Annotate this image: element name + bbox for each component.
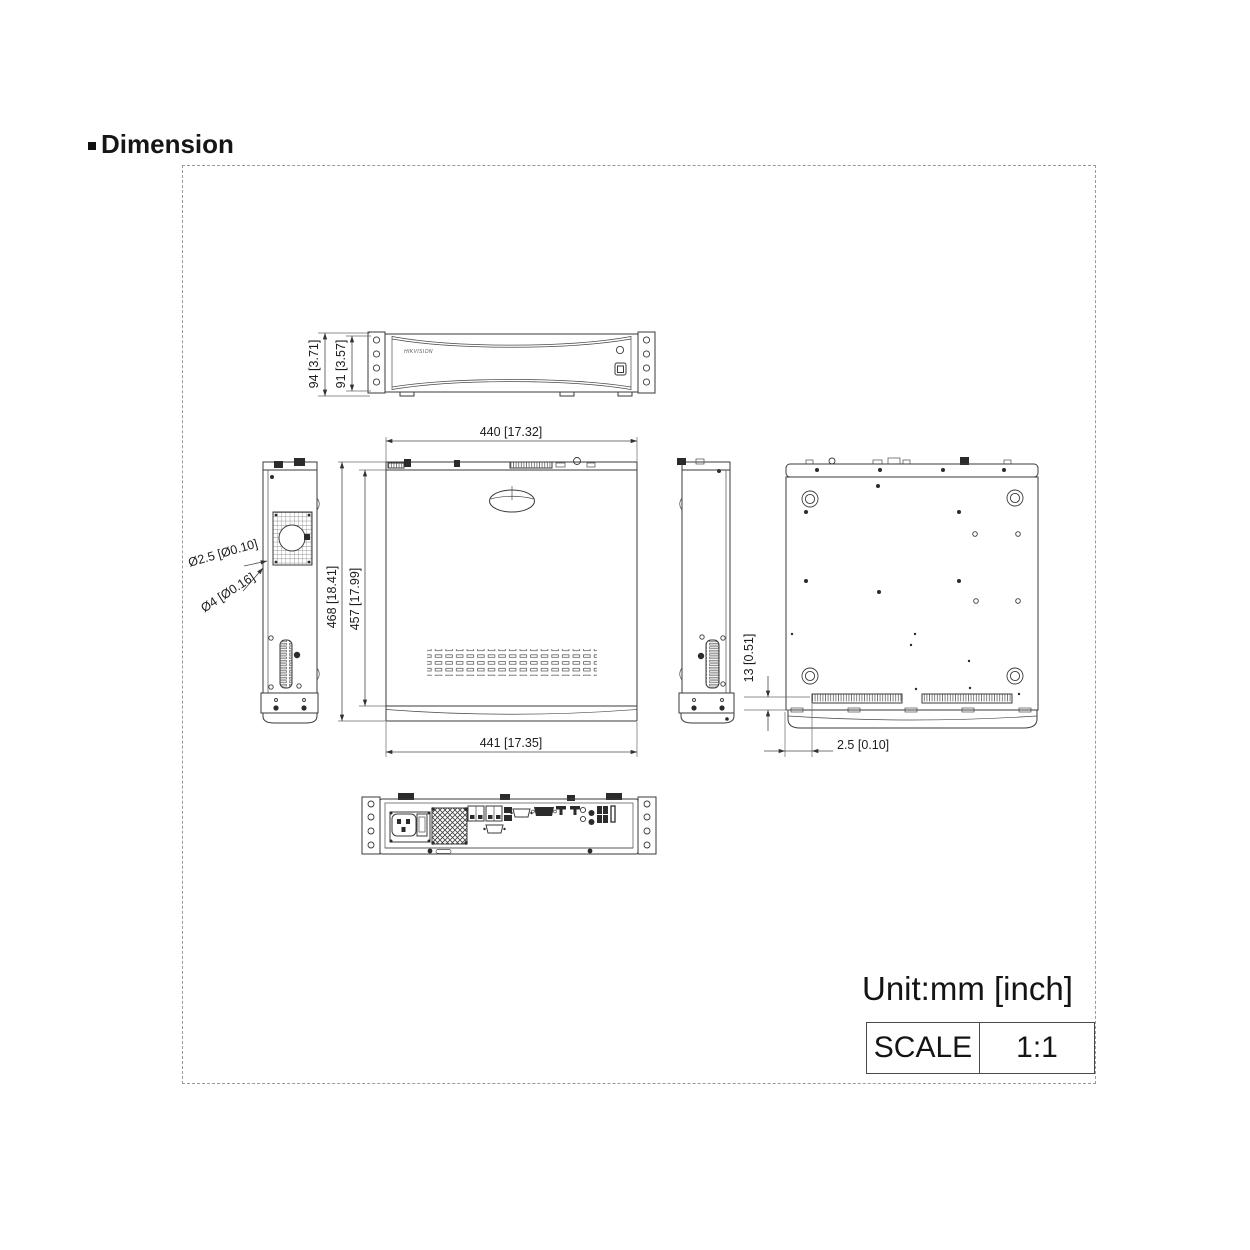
dim-foot-height: 13 [0.51]: [742, 634, 756, 683]
hikvision-logo: HIKVISION: [404, 349, 433, 355]
left-side-view-drawing: [261, 458, 319, 723]
dim-foot-offset: 2.5 [0.10]: [837, 738, 889, 752]
side-connector-slots-right: [706, 640, 719, 688]
front-usb-port: [615, 363, 626, 375]
bottom-feet: [802, 490, 1023, 684]
rear-alarm-terminal-block: [597, 806, 615, 823]
rear-hdmi-ports: [556, 806, 580, 815]
rear-view-drawing: [362, 793, 656, 854]
bottom-vent-strip-left: [812, 694, 902, 703]
rear-audio-jacks: [580, 807, 594, 825]
top-view-dimension-lines: [338, 437, 637, 757]
bottom-view-drawing: [786, 457, 1038, 728]
rear-vga-port: [510, 809, 532, 817]
scale-value: 1:1: [980, 1023, 1094, 1073]
rear-vent-grille: [431, 807, 467, 844]
dim-top-width: 440 [17.32]: [480, 425, 543, 439]
right-side-view-drawing: [677, 458, 734, 723]
front-power-button: [616, 346, 623, 353]
rear-serial-port: [532, 807, 557, 816]
top-view-drawing: [386, 458, 637, 722]
top-vent-slots: [427, 649, 597, 676]
rear-network-ports: [468, 806, 502, 821]
scale-label: SCALE: [867, 1023, 980, 1073]
dim-bottom-width: 441 [17.35]: [480, 736, 543, 750]
dim-depth-inner: 457 [17.99]: [348, 568, 362, 631]
bottom-vent-strip-right: [922, 694, 1012, 703]
dimension-drawing-page: Dimension: [0, 0, 1250, 1250]
dim-front-height-outer: 94 [3.71]: [307, 340, 321, 389]
dim-screw-hole-large: Ø4 [Ø0.16]: [198, 570, 257, 615]
side-connector-slots: [280, 640, 292, 688]
top-dome-detail: [490, 486, 535, 512]
rear-vga-port-lower: [483, 825, 505, 833]
scale-table: SCALE 1:1: [866, 1022, 1095, 1074]
dim-depth-outer: 468 [18.41]: [325, 566, 339, 629]
rear-usb-ports: [504, 807, 512, 821]
unit-note: Unit:mm [inch]: [862, 970, 1092, 1008]
dim-front-height-inner: 91 [3.57]: [334, 340, 348, 389]
rear-power-inlet: [390, 812, 431, 843]
side-fan-grille: [273, 512, 312, 565]
front-view-drawing: [368, 332, 655, 396]
